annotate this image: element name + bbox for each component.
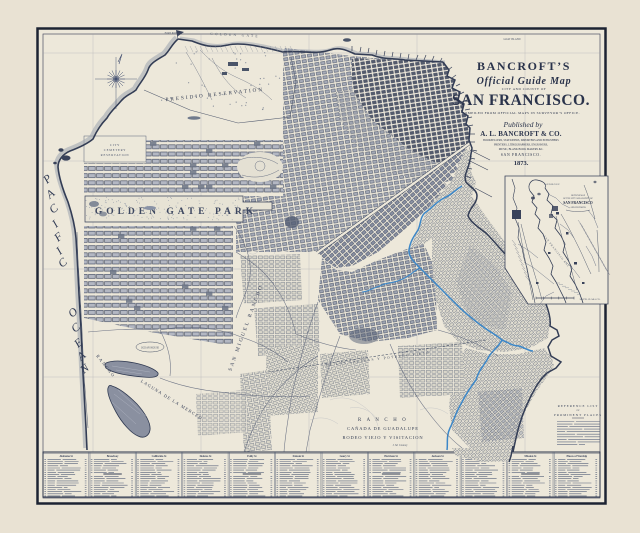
svg-text:REFERENCE LIST: REFERENCE LIST: [558, 404, 599, 408]
svg-text:BANCROFT’S: BANCROFT’S: [477, 59, 571, 73]
svg-text:CITY: CITY: [110, 143, 120, 147]
svg-text:GOAT ISLAND: GOAT ISLAND: [503, 38, 520, 41]
svg-text:CEMETERY: CEMETERY: [104, 148, 126, 152]
svg-text:SAN FRANCISCO: SAN FRANCISCO: [563, 201, 593, 205]
svg-text:Alabama St: Alabama St: [59, 455, 73, 458]
svg-text:J. M. Cooney: J. M. Cooney: [393, 444, 409, 447]
svg-text:RODEO VIEJO Y VISITACION: RODEO VIEJO Y VISITACION: [342, 435, 423, 440]
svg-text:SAN PABLO BAY: SAN PABLO BAY: [544, 183, 560, 186]
svg-text:Jackson St: Jackson St: [431, 455, 443, 458]
svg-text:California St: California St: [152, 455, 167, 458]
svg-text:MUSIC, BLANK BOOK MAKERS &C.: MUSIC, BLANK BOOK MAKERS &C.: [499, 148, 544, 151]
svg-text:OF THE CITY AND COUNTY OF: OF THE CITY AND COUNTY OF: [563, 197, 593, 200]
svg-text:CAÑADA DE GUADALUPE: CAÑADA DE GUADALUPE: [347, 426, 419, 431]
svg-text:SAN FRANCISCO.: SAN FRANCISCO.: [501, 153, 542, 157]
svg-text:AND ENVIRONS: AND ENVIRONS: [570, 206, 586, 209]
svg-text:Eddy St: Eddy St: [247, 455, 256, 458]
svg-text:A. L. BANCROFT & CO.: A. L. BANCROFT & CO.: [480, 130, 562, 138]
svg-text:Dolores St: Dolores St: [200, 455, 212, 458]
svg-text:Official Guide Map: Official Guide Map: [477, 76, 572, 87]
svg-text:Places of Worship: Places of Worship: [567, 455, 588, 458]
svg-text:Folsom St: Folsom St: [293, 455, 305, 458]
svg-text:BOOKSELLERS, STATIONERS, IMPOR: BOOKSELLERS, STATIONERS, IMPORTERS AND P…: [483, 139, 559, 142]
svg-text:OUTLINE MAP: OUTLINE MAP: [571, 194, 586, 197]
svg-text:CITY AND COUNTY OF: CITY AND COUNTY OF: [502, 87, 546, 91]
svg-text:SANTA CLARA CO.: SANTA CLARA CO.: [580, 298, 601, 301]
svg-text:COMPILED FROM OFFICIAL MAPS IN: COMPILED FROM OFFICIAL MAPS IN SURVEYOR’…: [462, 111, 580, 115]
svg-text:PROMINENT PLACES: PROMINENT PLACES: [554, 413, 602, 417]
svg-text:GOLDEN GATE PARK: GOLDEN GATE PARK: [95, 207, 257, 217]
svg-text:PRINTERS, LITHOGRAPHERS, ENGRA: PRINTERS, LITHOGRAPHERS, ENGRAVERS,: [494, 144, 548, 147]
svg-text:Mission St: Mission St: [524, 455, 536, 458]
svg-text:Geary St: Geary St: [340, 455, 350, 458]
svg-text:1873.: 1873.: [514, 160, 529, 167]
svg-text:SAN FRANCISCO.: SAN FRANCISCO.: [452, 92, 590, 109]
svg-text:Harrison St: Harrison St: [384, 455, 398, 458]
svg-text:RESERVATION: RESERVATION: [101, 153, 130, 157]
svg-text:Published by: Published by: [503, 120, 544, 129]
svg-text:R A N C H O: R A N C H O: [358, 418, 408, 423]
svg-text:Broadway: Broadway: [107, 455, 119, 458]
svg-text:OCEAN HOUSE: OCEAN HOUSE: [141, 347, 160, 350]
